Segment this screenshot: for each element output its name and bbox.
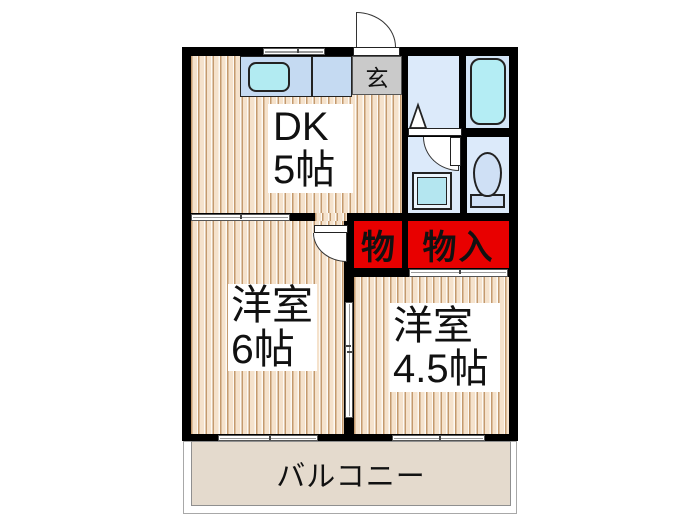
- dk-size: 5帖: [273, 149, 335, 191]
- floor-plan: 玄 物: [0, 0, 700, 525]
- dk-room-door-leaf: [314, 225, 348, 233]
- dk-label: DK 5帖: [268, 104, 353, 193]
- room6-name: 洋室: [231, 284, 313, 327]
- entrance-door-arc-icon: [356, 12, 396, 47]
- kitchen-window: [263, 48, 325, 55]
- washing-machine-icon: [412, 172, 452, 210]
- toilet-icon: [473, 152, 502, 197]
- room45-name: 洋室: [393, 305, 473, 347]
- kitchen-counter-divider: [311, 56, 313, 97]
- wall-left: [182, 47, 191, 441]
- closet-small-label: 物: [361, 220, 395, 269]
- sanitary-door: [408, 128, 462, 136]
- room45-label: 洋室 4.5帖: [390, 303, 500, 392]
- room45-size: 4.5帖: [393, 348, 489, 390]
- laundry-door-leaf: [450, 137, 461, 166]
- washing-machine-drum: [417, 177, 447, 205]
- room-divider-sliding-door: [345, 302, 353, 418]
- closet-large: 物入: [408, 221, 509, 268]
- closet-large-label: 物入: [423, 220, 495, 269]
- bathtub-icon: [470, 58, 506, 125]
- dk-room6-sliding-door: [191, 214, 290, 221]
- kitchen-sink-icon: [248, 62, 290, 92]
- wall-right: [509, 47, 518, 441]
- genkan-label: 玄: [366, 59, 389, 93]
- closet-sliding-door: [409, 269, 508, 277]
- closet-small: 物: [354, 221, 402, 268]
- balcony: バルコニー: [191, 441, 511, 506]
- balcony-label: バルコニー: [276, 453, 425, 495]
- laundry-pan-triangle-icon: [408, 102, 430, 130]
- genkan-area: 玄: [352, 56, 402, 95]
- wall-wc-divider: [460, 137, 467, 213]
- wall-bath-divider: [459, 56, 466, 128]
- dk-name: DK: [273, 106, 329, 148]
- entrance-door-leaf: [353, 47, 400, 56]
- doorway-floor-patch: [315, 213, 347, 221]
- room6-size: 6帖: [231, 328, 295, 371]
- room6-label: 洋室 6帖: [228, 284, 317, 371]
- wall-top: [182, 47, 518, 56]
